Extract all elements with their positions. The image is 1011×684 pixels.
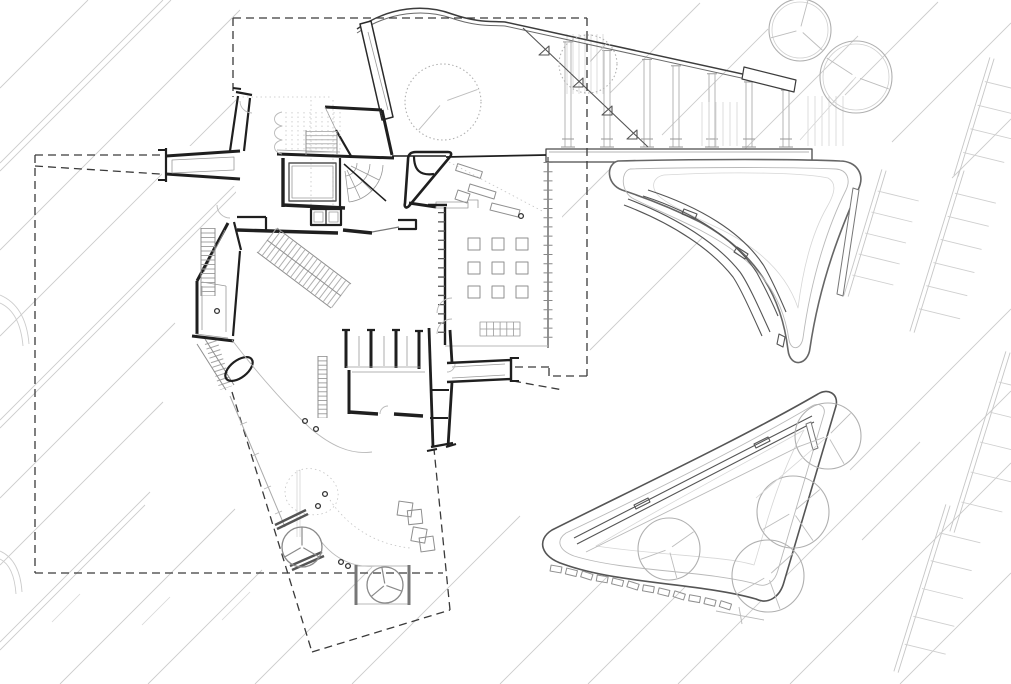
paver	[704, 598, 716, 606]
paver	[658, 588, 670, 596]
column	[669, 66, 683, 147]
stipple-dot	[402, 70, 404, 72]
parking-rake	[954, 57, 1011, 176]
survey-marker	[339, 560, 344, 565]
site-plan-sheet	[0, 0, 1011, 684]
paver	[627, 581, 639, 590]
stipple-dot	[383, 61, 385, 63]
paver	[596, 575, 608, 583]
column	[640, 59, 654, 147]
paver	[612, 578, 624, 586]
stipple-dot	[401, 49, 403, 51]
stipple-dot	[377, 35, 379, 37]
survey-marker	[346, 564, 351, 569]
garden-squares	[397, 501, 435, 552]
site-plan-drawing	[0, 0, 1011, 684]
stipple-dot	[388, 66, 390, 68]
paver	[689, 595, 701, 603]
stipple-dot	[386, 46, 388, 48]
stipple-dot	[387, 67, 389, 69]
stipple-dot	[399, 63, 401, 65]
stipple-dot	[382, 40, 384, 42]
paver	[719, 601, 731, 610]
paver	[550, 565, 562, 573]
parking-rows	[844, 57, 1011, 672]
stipple-dot	[393, 37, 395, 39]
stipple-dot	[395, 79, 397, 81]
column	[742, 82, 756, 147]
stipple-dot	[384, 60, 386, 62]
column	[779, 90, 793, 147]
stipple-dot	[394, 58, 396, 60]
paver	[642, 585, 654, 593]
stipple-dot	[400, 84, 402, 86]
stipple-dot	[390, 52, 392, 54]
survey-marker	[323, 492, 328, 497]
parking-rake	[910, 169, 996, 332]
stipple-dot	[391, 73, 393, 75]
survey-marker	[316, 504, 321, 509]
fan-trees	[282, 527, 403, 603]
stipple-dot	[398, 64, 400, 66]
stipple-dot	[396, 78, 398, 80]
column	[600, 51, 614, 147]
colonnade	[561, 42, 793, 147]
stipple-dot	[392, 72, 394, 74]
paver	[673, 591, 685, 600]
tree	[559, 35, 617, 93]
paver	[565, 568, 577, 576]
stipple-dot	[397, 43, 399, 45]
planter-upper	[609, 160, 860, 363]
survey-marker	[215, 309, 220, 314]
parking-rake	[950, 351, 1011, 532]
fan-tree	[367, 567, 403, 603]
tree	[769, 0, 831, 61]
